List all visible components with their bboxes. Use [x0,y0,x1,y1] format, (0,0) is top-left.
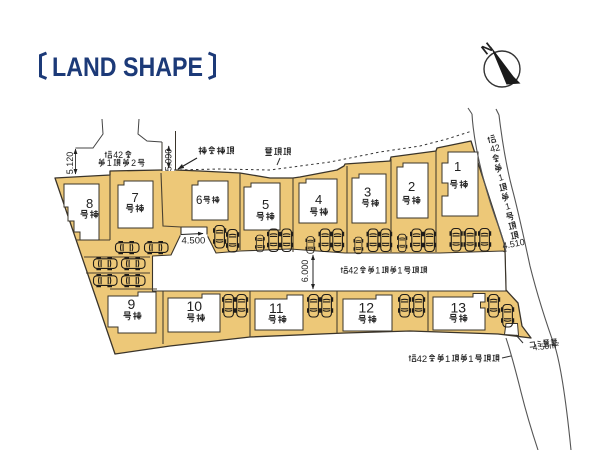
svg-text:7: 7 [132,190,139,205]
svg-text:42: 42 [417,354,428,365]
svg-text:11: 11 [269,300,284,316]
svg-text:1: 1 [454,159,461,174]
svg-text:3: 3 [364,185,371,200]
svg-text:42: 42 [113,150,123,160]
svg-text:5: 5 [262,197,269,212]
svg-text:42: 42 [348,265,358,275]
svg-text:13: 13 [451,300,467,316]
svg-text:LAND SHAPE: LAND SHAPE [52,52,203,82]
svg-text:1: 1 [468,354,473,365]
svg-text:1: 1 [397,265,402,275]
svg-text:4.500: 4.500 [182,236,206,247]
svg-text:1: 1 [375,265,380,275]
svg-text:6.000: 6.000 [300,260,310,283]
svg-text:5.120: 5.120 [65,152,75,175]
svg-text:6: 6 [196,195,202,207]
svg-text:5.090: 5.090 [164,149,174,172]
svg-text:1: 1 [445,354,450,365]
svg-text:4: 4 [315,192,322,207]
svg-text:1: 1 [107,158,112,168]
svg-text:9: 9 [128,296,136,312]
svg-text:12: 12 [359,300,375,316]
svg-text:2: 2 [408,179,415,194]
svg-text:2: 2 [131,158,136,168]
svg-text:8: 8 [86,196,93,211]
svg-text:10: 10 [187,298,203,314]
